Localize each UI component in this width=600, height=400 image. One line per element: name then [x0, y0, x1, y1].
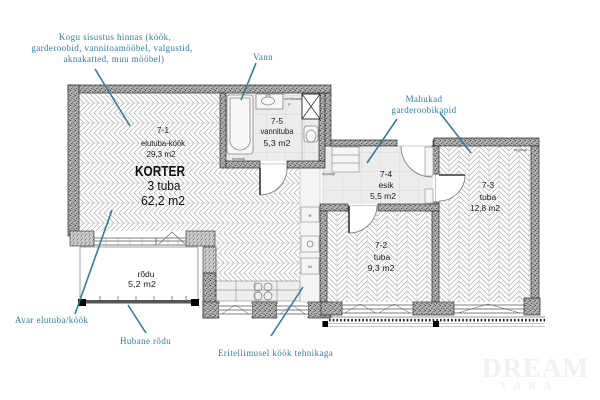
- svg-text:VARA: VARA: [500, 380, 558, 392]
- svg-text:Vann: Vann: [253, 52, 273, 62]
- svg-text:ripplagi: ripplagi: [322, 171, 335, 176]
- svg-text:7-1: 7-1: [157, 125, 170, 135]
- svg-text:Eritellimusel köök tehnikaga: Eritellimusel köök tehnikaga: [218, 348, 333, 358]
- svg-text:Avar elutuba/köök: Avar elutuba/köök: [15, 315, 88, 325]
- svg-text:DREAM: DREAM: [482, 353, 589, 383]
- svg-text:rõdu: rõdu: [137, 269, 154, 279]
- svg-text:P: P: [288, 102, 291, 107]
- svg-text:9,3 m2: 9,3 m2: [368, 263, 395, 273]
- svg-text:tuba: tuba: [374, 252, 391, 262]
- svg-text:5,5 m2: 5,5 m2: [370, 191, 396, 201]
- svg-text:vannituba: vannituba: [261, 126, 294, 136]
- svg-text:Kogu sisustus hinnas (köök,: Kogu sisustus hinnas (köök,: [59, 32, 171, 42]
- svg-text:ventilaade: ventilaade: [284, 96, 303, 101]
- svg-text:29,3 m2: 29,3 m2: [147, 149, 176, 159]
- svg-text:5,3 m2: 5,3 m2: [264, 138, 291, 148]
- svg-text:7-5: 7-5: [271, 116, 284, 126]
- svg-text:❄: ❄: [308, 213, 311, 218]
- svg-text:3 tuba: 3 tuba: [148, 178, 182, 193]
- svg-text:60: 60: [308, 264, 313, 269]
- svg-text:esik: esik: [378, 180, 394, 190]
- svg-text:7-2: 7-2: [375, 240, 388, 250]
- svg-text:garderoobikapid: garderoobikapid: [392, 105, 457, 115]
- svg-text:5,2 m2: 5,2 m2: [128, 279, 156, 289]
- svg-text:12,8 m2: 12,8 m2: [470, 203, 500, 213]
- svg-text:62,2 m2: 62,2 m2: [141, 193, 185, 208]
- svg-text:tuba: tuba: [480, 192, 497, 202]
- svg-text:elutuba-köök: elutuba-köök: [141, 138, 186, 148]
- svg-text:Mahukad: Mahukad: [406, 94, 443, 104]
- svg-text:garderoobid, vannitoamööbel, v: garderoobid, vannitoamööbel, valgustid,: [31, 43, 192, 53]
- svg-text:aknakatted, muu mööbel): aknakatted, muu mööbel): [64, 54, 165, 64]
- svg-text:ripplagi: ripplagi: [514, 147, 527, 152]
- svg-text:7-4: 7-4: [380, 169, 393, 179]
- svg-text:7-3: 7-3: [482, 180, 495, 190]
- svg-text:Hubane rõdu: Hubane rõdu: [120, 336, 171, 346]
- svg-text:ripplagi: ripplagi: [232, 156, 245, 161]
